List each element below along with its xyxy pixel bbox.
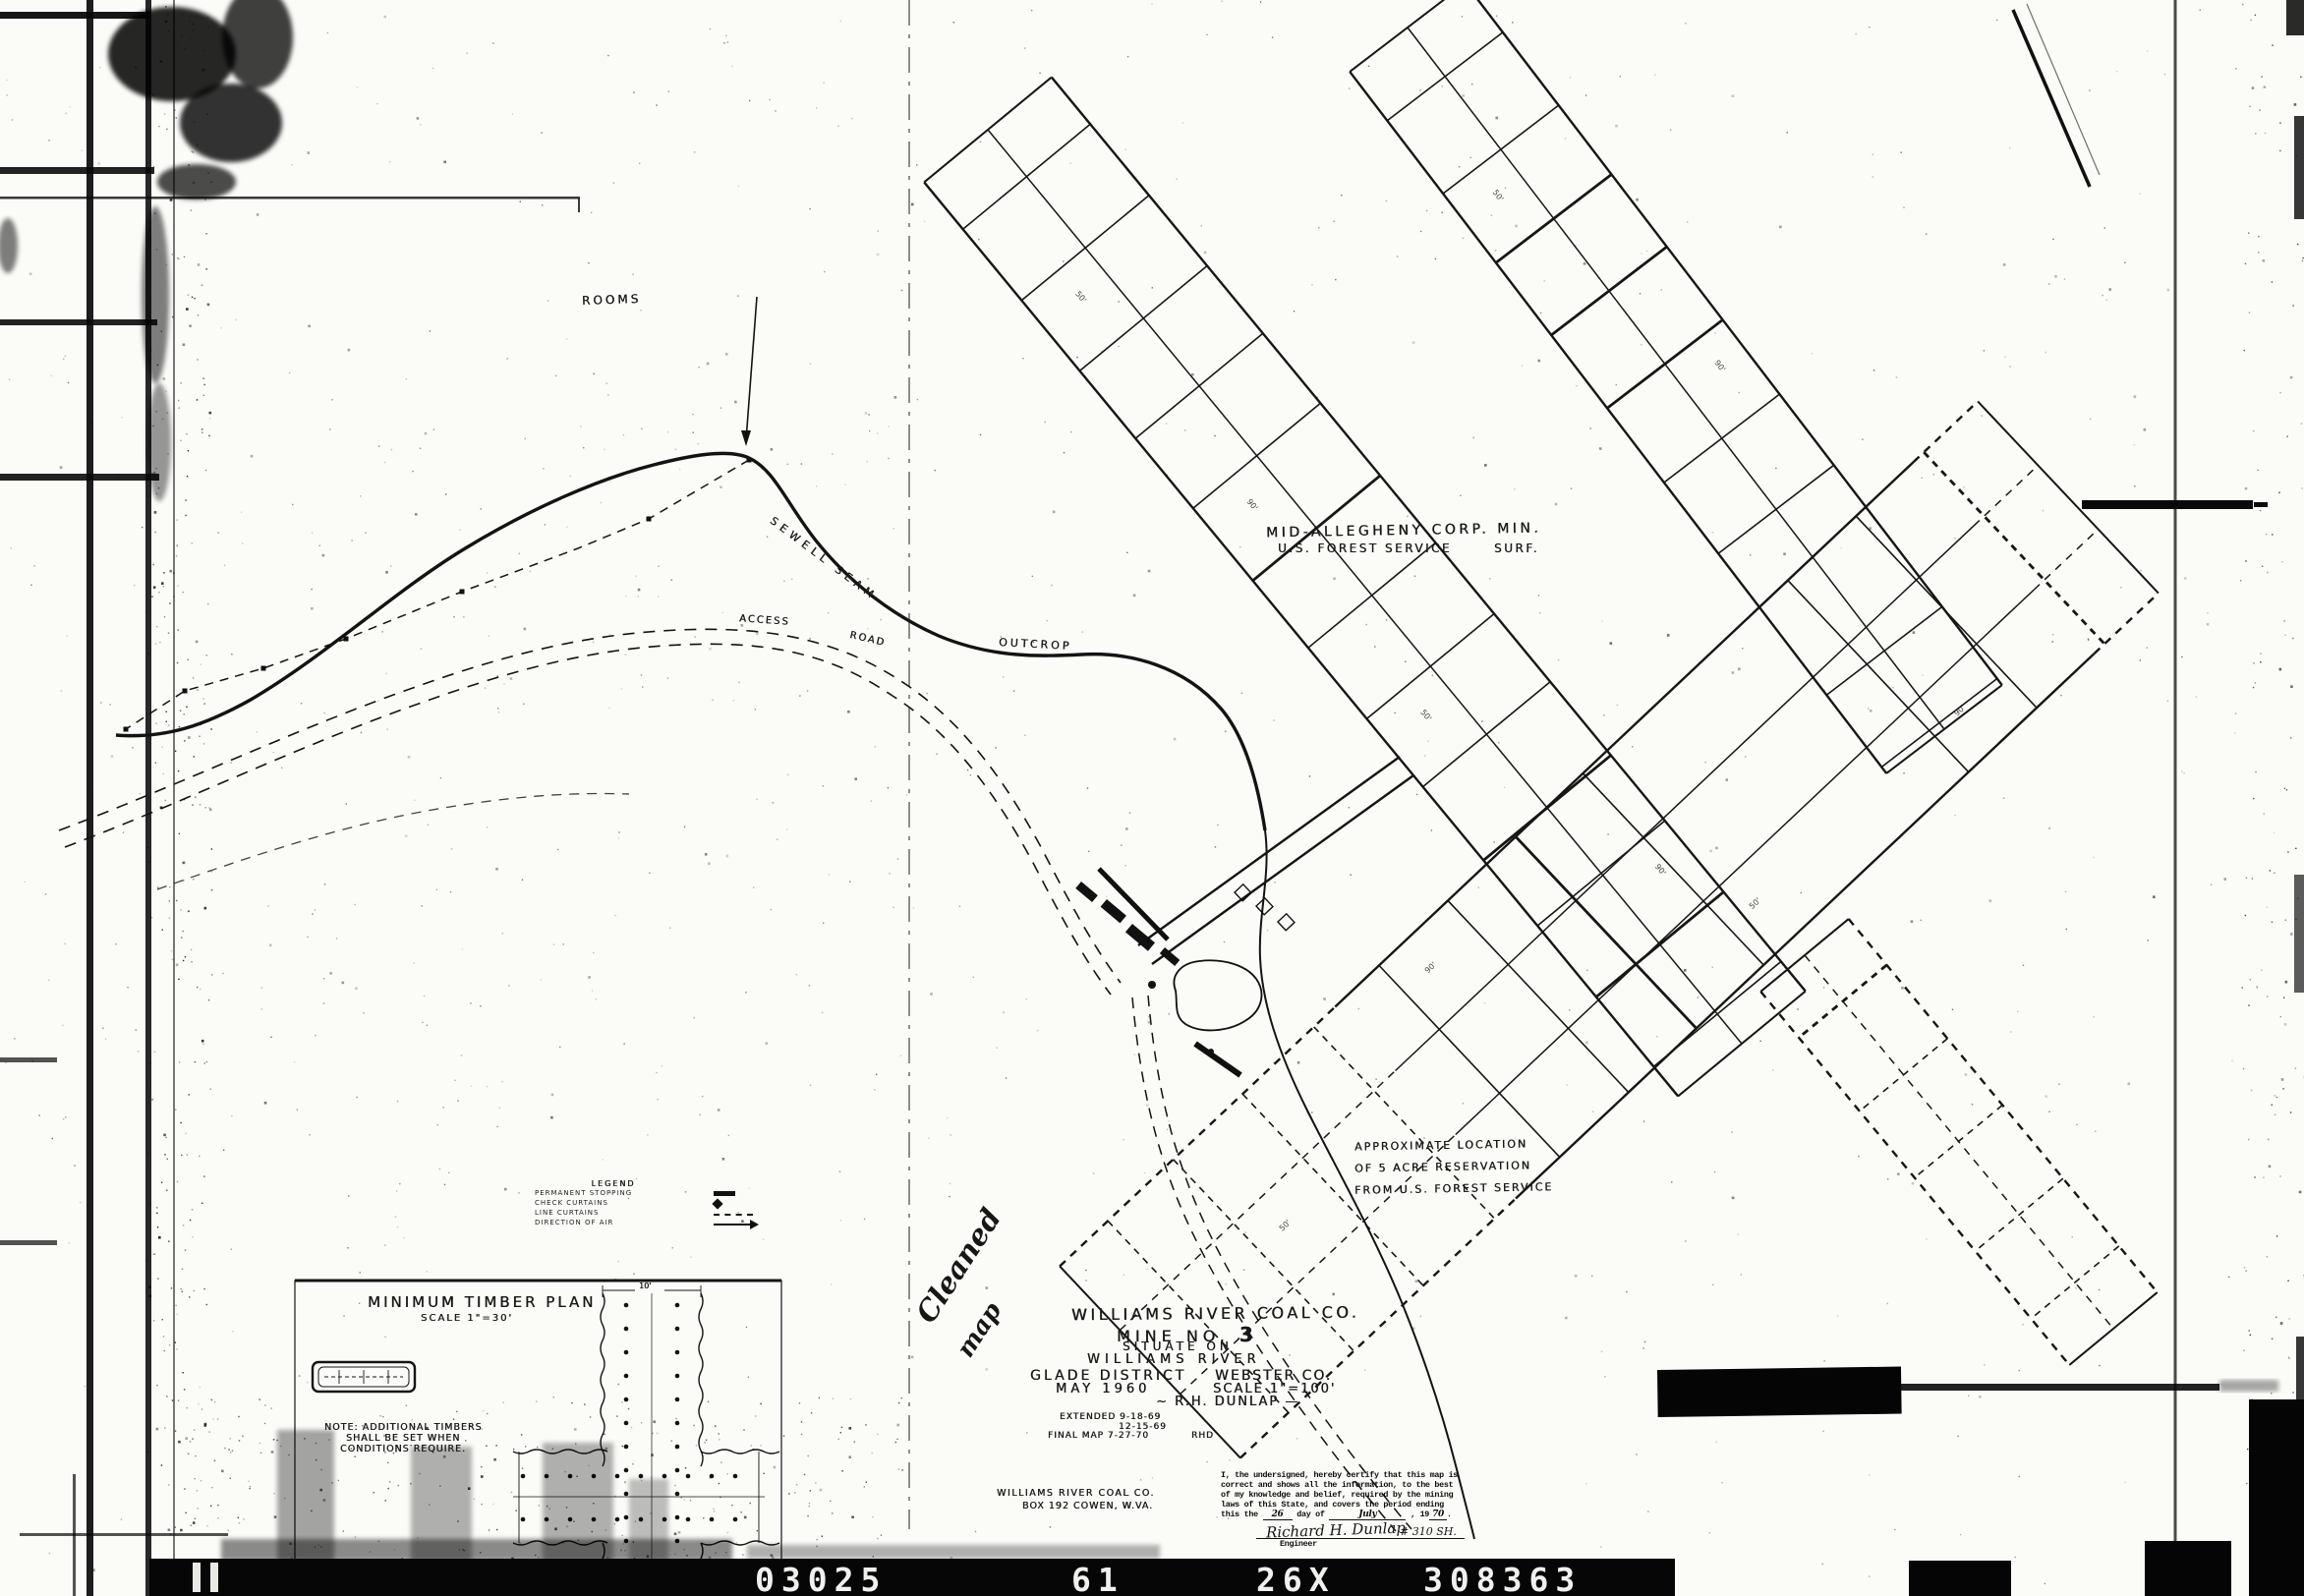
timber-plan-title: MINIMUM TIMBER PLAN (368, 1295, 596, 1310)
title-district: GLADE DISTRICT (1030, 1369, 1186, 1383)
svg-text:90': 90' (1952, 703, 1967, 717)
legend-item-direction-of-air: DIRECTION OF AIR (535, 1219, 790, 1227)
line-curtain-symbol-icon (714, 1210, 753, 1218)
legend-item-check-curtains: CHECK CURTAINS (535, 1199, 790, 1208)
certification-line-4: laws of this State, and covers the perio… (1221, 1501, 1444, 1509)
certification-line-2: correct and shows all the information, t… (1221, 1481, 1453, 1489)
timber-plan-note-3: CONDITIONS REQUIRE. (340, 1445, 466, 1454)
title-revision-3: FINAL MAP 7-27-70 (1048, 1432, 1149, 1441)
reservation-line1: APPROXIMATE LOCATION (1354, 1138, 1527, 1152)
footer-ink-blob (1909, 1561, 2011, 1596)
tract-owner-line2a: U.S. FOREST SERVICE (1278, 542, 1452, 554)
title-revision-initials: RHD (1191, 1432, 1214, 1441)
engineer-license: # 310 SH. (1400, 1526, 1457, 1537)
certification-line-5: this the 26 day of July , 1970. (1221, 1510, 1452, 1520)
footer-id-bar: 03025 61 26X 308363 (149, 1559, 1675, 1596)
timber-plan-note-2: SHALL BE SET WHEN (346, 1434, 460, 1444)
legend: LEGEND PERMANENT STOPPING CHECK CURTAINS… (535, 1179, 790, 1227)
engineer-role: Engineer (1280, 1540, 1317, 1548)
footer-slit (193, 1563, 201, 1592)
svg-text:90': 90' (1423, 960, 1438, 975)
svg-text:90': 90' (1712, 359, 1727, 373)
certification-line-3: of my knowledge and belief, required by … (1221, 1491, 1453, 1499)
reservation-line2: OF 5 ACRE RESERVATION (1354, 1160, 1531, 1173)
legend-item-line-curtains: LINE CURTAINS (535, 1209, 790, 1218)
timber-plan-scale: SCALE 1"=30' (421, 1314, 513, 1324)
legend-label: CHECK CURTAINS (535, 1199, 608, 1207)
footer-code-3: 26X (1256, 1561, 1336, 1596)
legend-item-permanent-stopping: PERMANENT STOPPING (535, 1189, 790, 1198)
reservation-line3: FROM U.S. FOREST SERVICE (1354, 1181, 1553, 1196)
title-river: WILLIAMS RIVER (1087, 1353, 1261, 1366)
scanned-mine-map: 50'90'50'90'50'90'50'90'50'90' ROOMS SEW… (0, 0, 2304, 1596)
legend-label: DIRECTION OF AIR (535, 1219, 613, 1226)
title-date: MAY 1960 (1056, 1383, 1150, 1396)
footer-code-4: 308363 (1423, 1561, 1582, 1596)
footer-ink-blob (2145, 1541, 2231, 1596)
mine-number: 3 (1239, 1323, 1258, 1346)
title-situate: SITUATE ON (1123, 1340, 1233, 1352)
svg-text:50': 50' (1748, 896, 1762, 911)
title-county: WEBSTER CO. (1215, 1369, 1332, 1383)
cert-prefix: this the (1221, 1510, 1258, 1519)
svg-text:50': 50' (1278, 1219, 1293, 1233)
air-direction-arrow-icon (714, 1220, 757, 1227)
stopping-symbol-icon (714, 1190, 735, 1198)
company-address-1: WILLIAMS RIVER COAL CO. (997, 1489, 1155, 1499)
legend-label: LINE CURTAINS (535, 1209, 599, 1217)
legend-label: PERMANENT STOPPING (535, 1189, 632, 1197)
cert-year-label: 19 (1420, 1510, 1429, 1519)
svg-text:50': 50' (1073, 290, 1088, 305)
svg-text:50': 50' (1491, 188, 1506, 202)
footer-code-1: 03025 (755, 1561, 887, 1596)
cert-day: 26 (1263, 1510, 1293, 1520)
cert-mid: day of (1296, 1510, 1324, 1519)
corner-ink-blob (2249, 1399, 2304, 1596)
timber-plan-note-1: NOTE: ADDITIONAL TIMBERS (324, 1423, 483, 1433)
svg-text:90': 90' (1653, 862, 1668, 877)
svg-text:90': 90' (1245, 497, 1260, 512)
svg-text:50': 50' (1418, 708, 1433, 722)
legend-title: LEGEND (535, 1179, 692, 1188)
title-engineer: ~ R.H. DUNLAP — (1156, 1396, 1299, 1408)
title-company: WILLIAMS RIVER COAL CO. (1071, 1305, 1359, 1324)
cert-year: 70 (1429, 1510, 1447, 1520)
tract-owner-line2b: SURF. (1494, 542, 1539, 554)
title-revision-1: EXTENDED 9-18-69 (1060, 1413, 1161, 1422)
footer-slit (210, 1563, 218, 1592)
footer-code-2: 61 (1071, 1561, 1124, 1596)
company-address-2: BOX 192 COWEN, W.VA. (1022, 1502, 1153, 1511)
certification-line-1: I, the undersigned, hereby certify that … (1221, 1471, 1458, 1479)
rooms-label: ROOMS (582, 293, 642, 307)
timber-plan-dimension: 10' (639, 1282, 651, 1290)
